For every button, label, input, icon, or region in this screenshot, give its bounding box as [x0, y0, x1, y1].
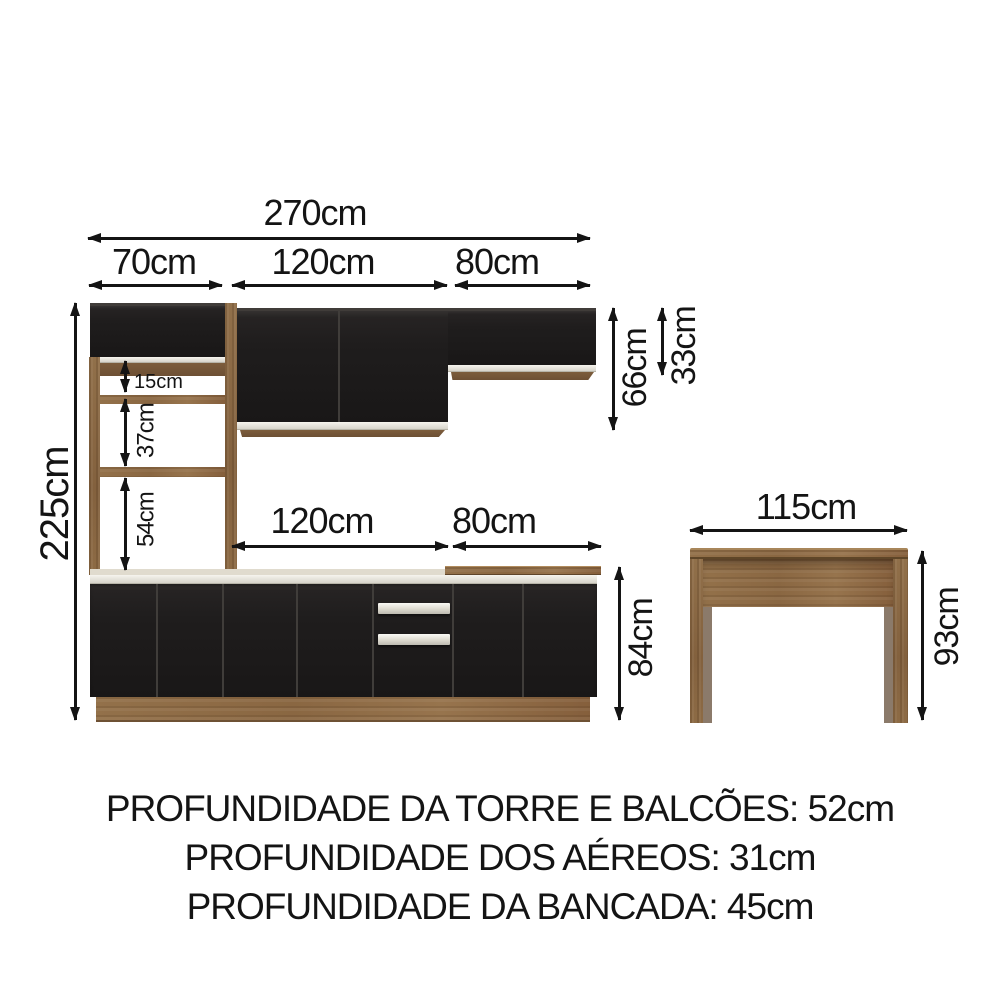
- desk-right-leg-inner-side: [884, 607, 893, 723]
- upper-cabinet-80: [448, 308, 596, 365]
- dim-arrow-niche-bottom: [124, 478, 127, 570]
- dim-label-desk-height: 93cm: [930, 567, 966, 687]
- desk-left-leg-inner-side: [703, 607, 712, 723]
- depth-notes: PROFUNDIDADE DA TORRE E BALCÕES: 52cm PR…: [0, 784, 1000, 931]
- dim-label-upper-middle-width: 120cm: [243, 243, 403, 281]
- dim-label-upper-tall-height: 66cm: [618, 308, 654, 428]
- upper-cabinet-80-underside: [451, 372, 594, 380]
- desk-right-leg: [893, 559, 908, 723]
- upper-cabinet-80-trim: [448, 365, 596, 372]
- dim-arrow-upper-short-height: [661, 308, 664, 375]
- dim-arrow-base-height: [618, 567, 621, 720]
- tower-top-cabinet: [90, 303, 225, 357]
- upper-cabinet-120-trim: [237, 422, 448, 430]
- desk-top: [690, 548, 908, 559]
- dim-arrow-base-middle-width: [232, 545, 448, 548]
- dim-arrow-upper-middle-width: [232, 284, 447, 287]
- base-door-seam-3: [296, 584, 298, 697]
- tower-right-post: [225, 303, 237, 575]
- furniture-dimension-diagram: 270cm 70cm 120cm 80cm 120cm 80cm 115cm 2…: [0, 0, 1000, 1000]
- dim-label-tower-width: 70cm: [94, 243, 214, 281]
- dim-label-base-middle-width: 120cm: [242, 502, 402, 540]
- depth-note-tower-balcony: PROFUNDIDADE DA TORRE E BALCÕES: 52cm: [0, 784, 1000, 833]
- dim-label-desk-width: 115cm: [726, 488, 886, 526]
- dim-arrow-desk-height: [921, 551, 924, 720]
- dim-arrow-upper-tall-height: [612, 308, 615, 430]
- dim-label-overall-height: 225cm: [34, 424, 76, 584]
- base-door-seam-1: [156, 584, 158, 697]
- dim-label-base-right-width: 80cm: [434, 502, 554, 540]
- tower-left-post: [89, 357, 100, 575]
- depth-note-wall-cabinets: PROFUNDIDADE DOS AÉREOS: 31cm: [0, 833, 1000, 882]
- base-cabinet-doors: [90, 584, 597, 697]
- tower-shelf-upper: [100, 395, 225, 404]
- dim-arrow-upper-right-width: [455, 284, 590, 287]
- dim-label-niche-bottom: 54cm: [133, 475, 158, 565]
- upper-cabinet-120: [237, 308, 448, 422]
- drawer-handle-bottom: [378, 634, 450, 645]
- upper-cabinet-120-door-seam: [338, 311, 340, 422]
- dim-label-base-height: 84cm: [624, 578, 660, 698]
- countertop: [445, 566, 601, 575]
- base-door-seam-4: [372, 584, 374, 697]
- dim-arrow-base-right-width: [453, 545, 601, 548]
- dim-arrow-overall-width: [88, 237, 590, 240]
- dim-label-upper-short-height: 33cm: [667, 286, 703, 406]
- dim-label-upper-right-width: 80cm: [437, 243, 557, 281]
- base-door-seam-5: [452, 584, 454, 697]
- tower-shelf-lower: [100, 467, 225, 477]
- dim-arrow-tower-width: [89, 284, 222, 287]
- dim-arrow-niche-top: [124, 361, 127, 392]
- desk-left-leg: [690, 559, 703, 723]
- dim-arrow-desk-width: [690, 529, 907, 532]
- dim-label-niche-middle: 37cm: [133, 386, 158, 476]
- upper-cabinet-120-underside: [240, 430, 445, 437]
- base-door-seam-2: [222, 584, 224, 697]
- desk-back-panel: [703, 559, 893, 607]
- plinth: [96, 697, 590, 722]
- base-door-seam-6: [522, 584, 524, 697]
- dim-label-overall-width: 270cm: [235, 194, 395, 232]
- drawer-handle-top: [378, 603, 450, 614]
- base-cabinet-trim: [90, 575, 597, 584]
- dim-arrow-niche-middle: [124, 399, 127, 466]
- depth-note-worktop: PROFUNDIDADE DA BANCADA: 45cm: [0, 882, 1000, 931]
